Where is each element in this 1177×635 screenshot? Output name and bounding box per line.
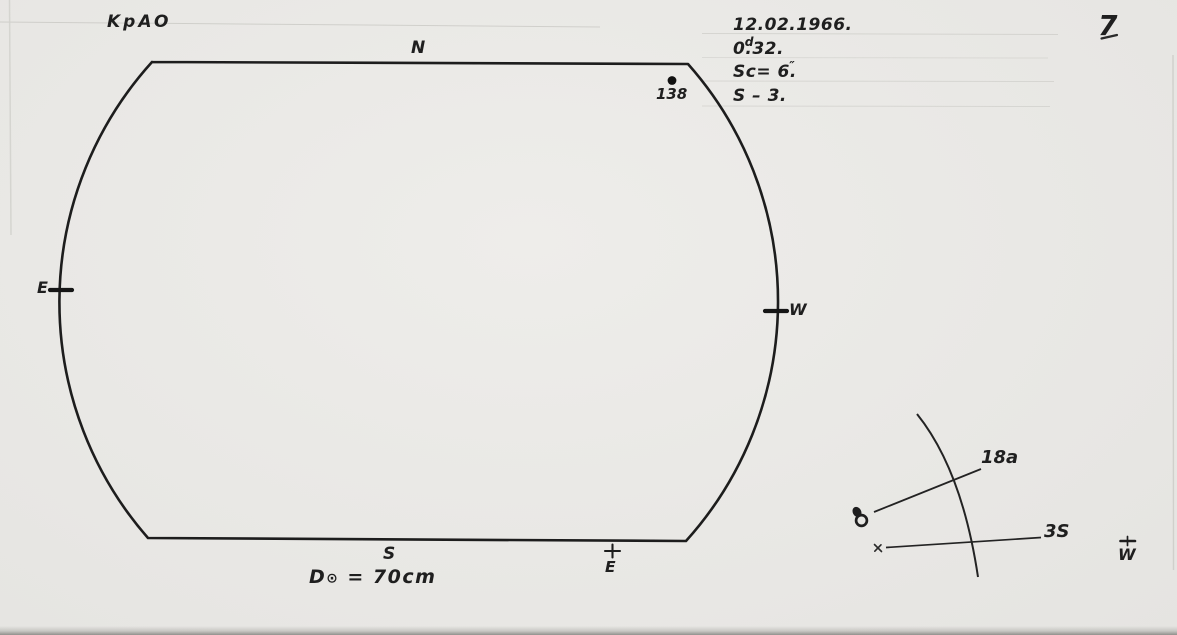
observation-series: S – 3. <box>733 85 853 109</box>
diameter-note: D⊙ = 70cm <box>309 567 436 588</box>
day-superscript: d. <box>745 38 752 62</box>
solar-disk-outline <box>59 62 778 541</box>
sunspot-138-dot <box>668 76 677 85</box>
south-label: S <box>383 545 395 564</box>
drawing-layer <box>0 0 1177 635</box>
scan-page: KpAO 7 12.02.1966. 0d.32. Sc= 6″. S – 3.… <box>0 0 1177 635</box>
detail-spot-label: 3S <box>1044 522 1070 542</box>
bottom-east-plus-icon <box>605 545 620 558</box>
arcsec-superscript: ″. <box>790 61 797 85</box>
observation-seeing: Sc= 6″. <box>733 61 853 85</box>
detail-limb-arc <box>917 414 978 577</box>
north-label: N <box>411 39 425 58</box>
east-label: E <box>37 279 48 297</box>
paper-edge-right <box>1173 55 1174 570</box>
pointer-line-18a <box>874 469 981 512</box>
scan-bottom-shadow <box>0 626 1177 635</box>
page-number: 7 <box>1098 11 1117 42</box>
sun-symbol: ⊙ <box>326 571 339 587</box>
observatory-label: KpAO <box>107 13 171 32</box>
observation-info: 12.02.1966. 0d.32. Sc= 6″. S – 3. <box>733 14 853 108</box>
sunspot-group-number: 138 <box>656 86 687 103</box>
bottom-east-label: E <box>605 559 616 576</box>
detail-west-label: W <box>1118 546 1136 564</box>
paper-crease-left <box>10 0 12 235</box>
pore-x-mark <box>875 545 882 552</box>
west-label: W <box>789 301 807 319</box>
detail-group-label: 18a <box>981 448 1018 468</box>
sunspot-sketch <box>851 505 867 526</box>
pointer-line-3s <box>886 538 1041 548</box>
